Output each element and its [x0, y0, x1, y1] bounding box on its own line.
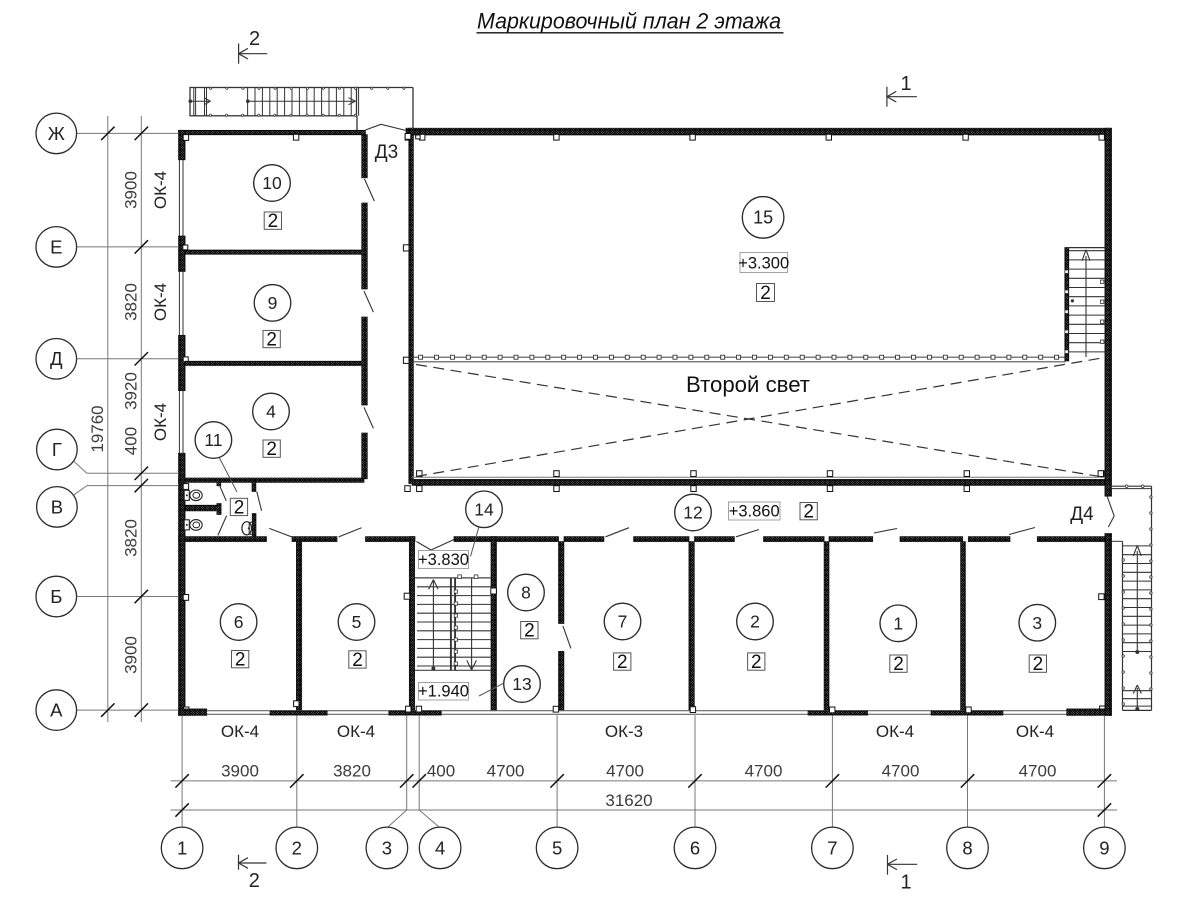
svg-text:2: 2 [249, 870, 260, 892]
svg-text:Е: Е [50, 236, 62, 257]
svg-text:4: 4 [435, 837, 445, 858]
svg-text:3820: 3820 [122, 519, 141, 557]
svg-text:2: 2 [760, 283, 771, 304]
svg-text:+3.860: +3.860 [729, 503, 780, 521]
svg-text:+3.300: +3.300 [738, 254, 789, 272]
svg-text:4700: 4700 [1019, 762, 1057, 781]
svg-text:14: 14 [474, 500, 494, 520]
svg-text:6: 6 [234, 612, 244, 632]
svg-text:8: 8 [962, 837, 972, 858]
svg-text:3900: 3900 [221, 762, 259, 781]
svg-text:3: 3 [382, 837, 392, 858]
svg-text:ОК-4: ОК-4 [876, 722, 914, 741]
svg-text:+3.830: +3.830 [418, 551, 469, 569]
svg-text:2: 2 [751, 652, 762, 673]
svg-text:Маркировочный план 2 этажа: Маркировочный план 2 этажа [477, 8, 781, 33]
svg-text:4700: 4700 [606, 762, 644, 781]
svg-text:7: 7 [618, 612, 628, 632]
svg-text:2: 2 [750, 612, 760, 632]
svg-text:ОК-4: ОК-4 [151, 283, 170, 321]
svg-text:4700: 4700 [882, 762, 920, 781]
svg-text:3: 3 [1032, 613, 1042, 633]
svg-text:2: 2 [1033, 654, 1044, 675]
svg-text:2: 2 [617, 652, 628, 673]
svg-text:19760: 19760 [88, 405, 107, 452]
svg-text:2: 2 [268, 211, 279, 232]
svg-text:5: 5 [552, 837, 562, 858]
svg-text:В: В [51, 496, 63, 517]
svg-text:2: 2 [266, 330, 277, 351]
svg-text:11: 11 [204, 430, 222, 450]
svg-text:7: 7 [827, 837, 837, 858]
svg-text:9: 9 [1099, 837, 1109, 858]
svg-text:2: 2 [803, 502, 814, 523]
svg-text:2: 2 [352, 650, 363, 671]
svg-text:5: 5 [352, 612, 362, 632]
svg-text:ОК-4: ОК-4 [151, 171, 170, 209]
svg-text:ОК-3: ОК-3 [605, 722, 643, 741]
svg-text:3900: 3900 [122, 636, 141, 674]
svg-text:8: 8 [521, 583, 531, 603]
svg-text:1: 1 [900, 871, 911, 893]
svg-text:Д4: Д4 [1070, 504, 1094, 525]
svg-text:1: 1 [893, 614, 903, 634]
svg-text:Д: Д [50, 348, 63, 369]
svg-text:ОК-4: ОК-4 [221, 722, 259, 741]
svg-text:2: 2 [249, 28, 260, 50]
svg-text:1: 1 [177, 837, 187, 858]
svg-text:31620: 31620 [605, 791, 652, 810]
svg-text:2: 2 [266, 439, 277, 460]
svg-text:ОК-4: ОК-4 [151, 403, 170, 441]
svg-text:13: 13 [512, 674, 531, 694]
svg-text:1: 1 [900, 73, 911, 95]
svg-text:Д3: Д3 [375, 142, 398, 163]
svg-text:3900: 3900 [122, 171, 141, 209]
svg-text:4: 4 [266, 402, 276, 422]
svg-text:6: 6 [690, 837, 700, 858]
svg-text:А: А [50, 700, 63, 721]
svg-text:400: 400 [427, 762, 455, 781]
svg-text:3820: 3820 [122, 283, 141, 321]
svg-text:Б: Б [50, 586, 62, 607]
svg-text:2: 2 [235, 650, 246, 671]
svg-text:2: 2 [524, 621, 535, 642]
svg-text:15: 15 [753, 208, 773, 228]
svg-text:12: 12 [683, 503, 702, 523]
svg-text:2: 2 [234, 497, 245, 518]
svg-text:Ж: Ж [48, 123, 65, 144]
svg-text:Второй свет: Второй свет [686, 372, 810, 397]
svg-text:2: 2 [292, 837, 302, 858]
svg-text:9: 9 [268, 293, 278, 313]
svg-text:3920: 3920 [122, 372, 141, 410]
svg-text:ОК-4: ОК-4 [1016, 722, 1054, 741]
svg-text:400: 400 [122, 427, 141, 455]
svg-text:2: 2 [893, 654, 904, 675]
svg-text:3820: 3820 [333, 762, 371, 781]
svg-text:4700: 4700 [745, 762, 783, 781]
svg-text:10: 10 [262, 173, 282, 193]
svg-text:ОК-4: ОК-4 [337, 722, 375, 741]
svg-text:4700: 4700 [487, 762, 525, 781]
svg-text:Г: Г [52, 439, 62, 460]
svg-text:+1.940: +1.940 [418, 683, 469, 701]
